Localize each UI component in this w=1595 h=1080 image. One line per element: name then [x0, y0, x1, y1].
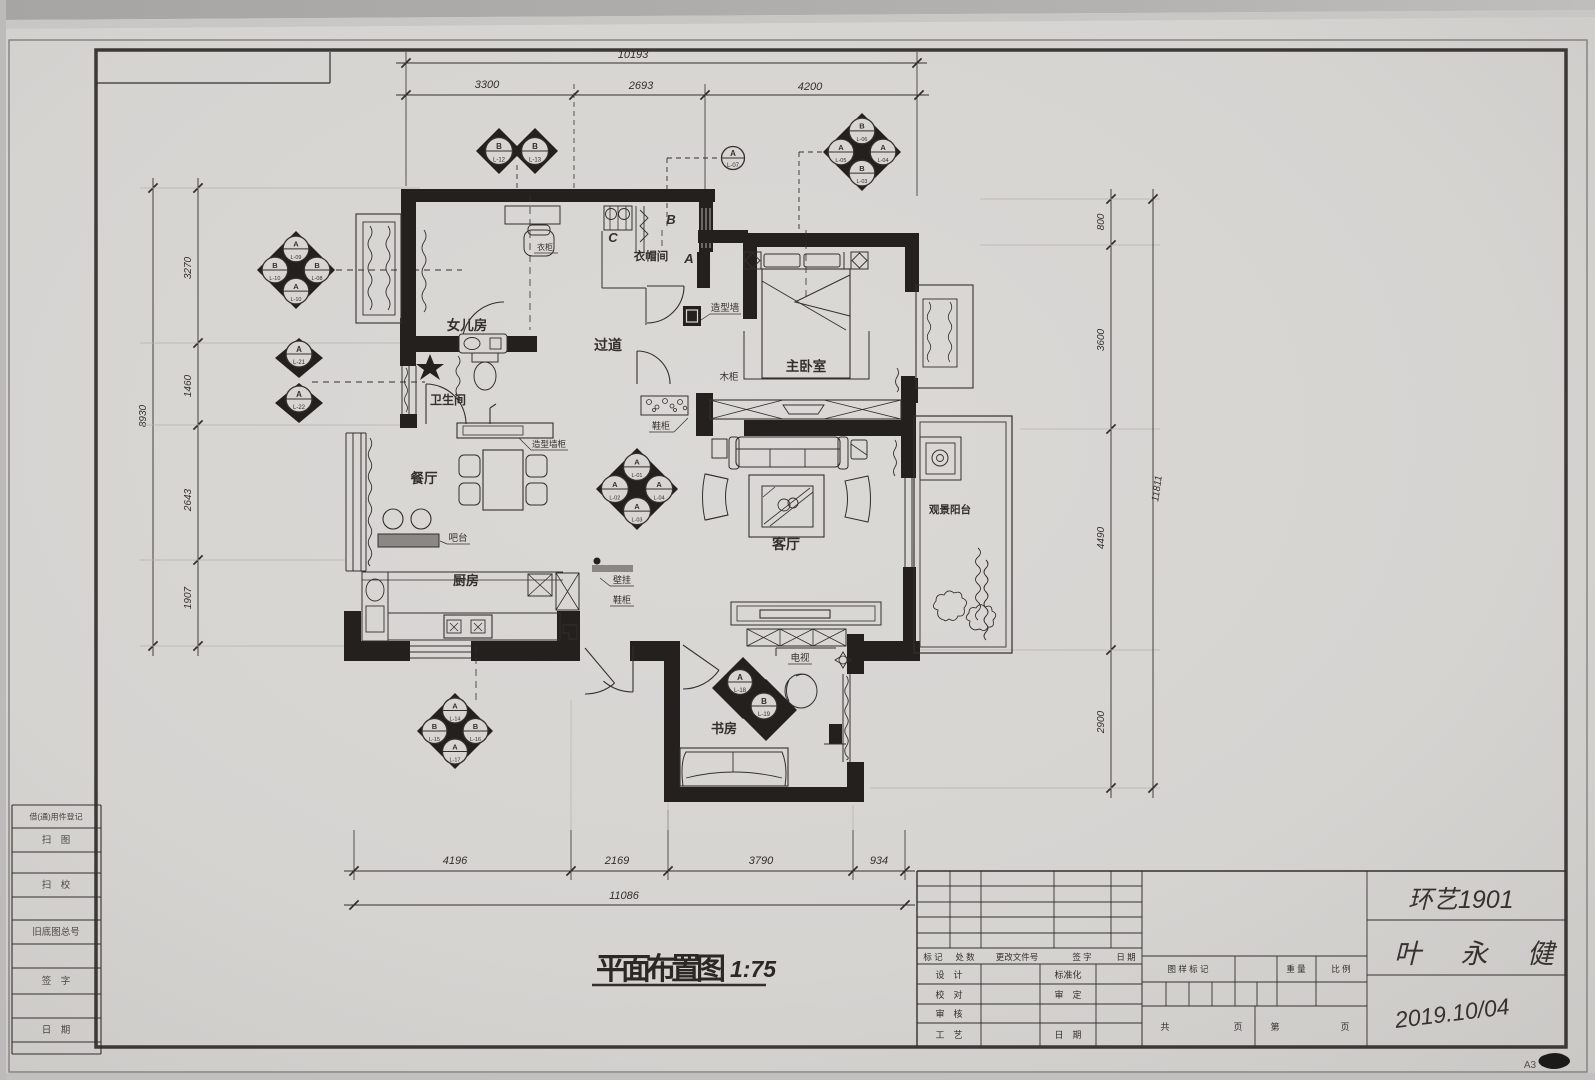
svg-text:日 期: 日 期 [1054, 1030, 1081, 1040]
svg-text:L-01: L-01 [631, 473, 642, 479]
svg-text:L-21: L-21 [293, 360, 306, 366]
svg-text:L-02: L-02 [609, 495, 620, 501]
svg-text:旧底图总号: 旧底图总号 [32, 926, 80, 938]
svg-text:L-13: L-13 [529, 157, 542, 163]
svg-text:3600: 3600 [1096, 328, 1107, 351]
svg-text:L-03: L-03 [631, 518, 642, 524]
svg-text:平面布置图: 平面布置图 [596, 953, 725, 986]
svg-text:B: B [473, 722, 479, 731]
svg-text:A: A [452, 742, 458, 751]
svg-text:A: A [296, 390, 302, 399]
svg-text:壁挂: 壁挂 [613, 574, 631, 585]
svg-text:1907: 1907 [183, 586, 194, 609]
svg-text:造型墙: 造型墙 [711, 302, 740, 314]
svg-text:扫 图: 扫 图 [42, 834, 71, 846]
svg-text:设 计: 设 计 [935, 969, 962, 980]
svg-text:A: A [293, 240, 299, 249]
svg-text:L-05: L-05 [835, 158, 846, 164]
svg-text:观景阳台: 观景阳台 [929, 503, 971, 516]
svg-text:1460: 1460 [183, 374, 194, 397]
svg-text:A: A [880, 143, 886, 152]
svg-text:标准化: 标准化 [1054, 969, 1081, 980]
svg-text:衣柜: 衣柜 [537, 242, 553, 252]
svg-text:L-18: L-18 [734, 688, 747, 694]
svg-text:日 期: 日 期 [1116, 952, 1135, 962]
svg-text:B: B [761, 697, 767, 706]
svg-text:4490: 4490 [1096, 526, 1107, 549]
svg-text:L-14: L-14 [449, 716, 460, 722]
svg-text:厨房: 厨房 [453, 573, 479, 588]
svg-text:3790: 3790 [749, 855, 774, 867]
svg-text:造型墙柜: 造型墙柜 [532, 439, 567, 449]
svg-text:3300: 3300 [475, 79, 500, 91]
svg-text:L-19: L-19 [758, 712, 771, 718]
svg-text:L-04: L-04 [654, 495, 665, 501]
svg-text:L-22: L-22 [293, 405, 306, 411]
svg-text:过道: 过道 [594, 337, 622, 353]
svg-text:A: A [838, 143, 844, 152]
svg-text:A: A [293, 282, 299, 291]
svg-text:页: 页 [1233, 1022, 1242, 1032]
svg-text:卫生间: 卫生间 [430, 392, 466, 407]
svg-text:B: B [532, 142, 538, 151]
svg-text:B: B [432, 722, 438, 731]
svg-text:L-06: L-06 [856, 137, 867, 143]
svg-text:11086: 11086 [609, 890, 640, 902]
svg-text:A: A [296, 345, 302, 354]
svg-text:女儿房: 女儿房 [447, 317, 488, 333]
svg-text:L-09: L-09 [290, 255, 301, 261]
svg-text:第: 第 [1270, 1021, 1279, 1032]
svg-text:签 字: 签 字 [42, 975, 71, 987]
svg-text:C: C [608, 230, 618, 245]
svg-text:电视: 电视 [790, 652, 810, 664]
svg-text:鞋柜: 鞋柜 [652, 420, 670, 431]
svg-text:客厅: 客厅 [771, 536, 800, 552]
svg-text:吧台: 吧台 [448, 532, 467, 544]
svg-text:10193: 10193 [618, 49, 649, 61]
svg-text:L-12: L-12 [493, 157, 506, 163]
svg-text:餐厅: 餐厅 [410, 470, 438, 486]
svg-text:A: A [452, 701, 458, 710]
svg-text:叶 永 健: 叶 永 健 [1394, 939, 1570, 969]
svg-text:B: B [314, 261, 320, 270]
svg-text:L-17: L-17 [449, 757, 460, 763]
svg-text:共: 共 [1160, 1022, 1169, 1032]
svg-text:B: B [859, 164, 865, 173]
svg-text:8930: 8930 [138, 404, 149, 427]
svg-text:B: B [496, 142, 502, 151]
svg-text:A3: A3 [1524, 1060, 1537, 1071]
svg-text:书房: 书房 [711, 721, 737, 736]
svg-text:木柜: 木柜 [719, 371, 739, 383]
svg-text:A: A [683, 251, 693, 266]
svg-text:页: 页 [1340, 1022, 1349, 1032]
svg-text:工 艺: 工 艺 [935, 1030, 962, 1040]
svg-text:2693: 2693 [628, 80, 654, 92]
svg-text:环艺1901: 环艺1901 [1408, 886, 1514, 914]
svg-text:A: A [737, 673, 743, 682]
svg-text:A: A [634, 458, 640, 467]
svg-text:比 例: 比 例 [1331, 964, 1350, 974]
svg-text:1:75: 1:75 [730, 956, 777, 982]
svg-text:L-16: L-16 [470, 737, 481, 743]
svg-text:934: 934 [870, 855, 888, 867]
svg-text:标 记: 标 记 [923, 952, 943, 962]
svg-text:4196: 4196 [443, 855, 468, 867]
svg-text:B: B [666, 212, 675, 227]
svg-text:2169: 2169 [604, 855, 629, 867]
svg-text:鞋柜: 鞋柜 [613, 594, 631, 605]
svg-text:L-08: L-08 [312, 276, 323, 282]
svg-text:A: A [612, 480, 618, 489]
svg-text:L-04: L-04 [878, 158, 889, 164]
svg-text:A: A [730, 149, 736, 158]
svg-text:审 核: 审 核 [935, 1008, 962, 1019]
svg-text:更改文件号: 更改文件号 [996, 952, 1039, 962]
svg-text:处 数: 处 数 [955, 952, 975, 962]
svg-text:签 字: 签 字 [1072, 952, 1091, 962]
svg-text:2900: 2900 [1096, 710, 1107, 734]
svg-text:L-15: L-15 [429, 737, 440, 743]
svg-text:扫 校: 扫 校 [42, 879, 71, 891]
svg-text:衣帽间: 衣帽间 [634, 249, 669, 263]
svg-text:2643: 2643 [183, 488, 194, 512]
svg-text:L-10: L-10 [290, 297, 301, 303]
svg-text:图 样 标 记: 图 样 标 记 [1167, 964, 1209, 974]
svg-text:4200: 4200 [798, 81, 823, 93]
svg-text:3270: 3270 [183, 256, 194, 279]
svg-text:L-10: L-10 [269, 276, 280, 282]
svg-text:借(通)用件登记: 借(通)用件登记 [29, 812, 82, 822]
svg-text:重 量: 重 量 [1286, 964, 1306, 974]
svg-text:审 定: 审 定 [1054, 989, 1081, 1000]
svg-text:B: B [272, 261, 278, 270]
svg-text:主卧室: 主卧室 [786, 358, 827, 374]
svg-text:L-03: L-03 [856, 179, 867, 185]
svg-text:A: A [634, 502, 640, 511]
svg-text:校 对: 校 对 [935, 989, 962, 1000]
svg-text:A: A [656, 480, 662, 489]
svg-text:日 期: 日 期 [42, 1025, 71, 1036]
svg-text:L-07: L-07 [727, 163, 740, 169]
svg-text:B: B [859, 122, 865, 131]
svg-text:800: 800 [1096, 213, 1107, 230]
